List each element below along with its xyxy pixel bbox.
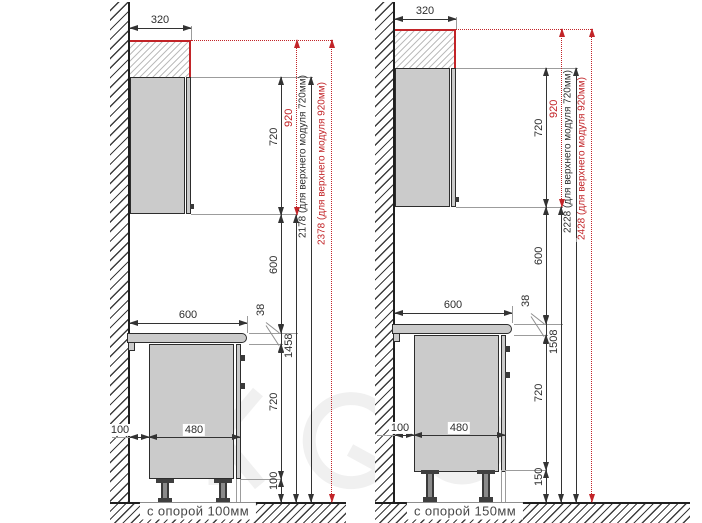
upper-module-920-extension (395, 29, 456, 68)
base-door-hinge-bottom (505, 372, 510, 378)
dim-seg-upper-height (546, 68, 547, 207)
dim-label-top-depth: 320 (414, 5, 436, 17)
dim-label-base-depth: 480 (448, 422, 470, 434)
leg-shaft (482, 474, 490, 497)
dim-seg-support (546, 470, 547, 502)
projection-line-920-top (456, 29, 593, 30)
dim-line-wall-offset (395, 435, 414, 436)
plinth-line (501, 470, 502, 502)
plinth-line (505, 470, 506, 502)
upper-door-knob (455, 197, 459, 202)
base-cabinet-door (501, 335, 506, 472)
leg-foot (423, 497, 437, 502)
leg-foot (479, 497, 493, 502)
dim-seg-gap (546, 207, 547, 324)
kitchen-mounting-diagram: 320 600 100 480 72 (0, 0, 702, 523)
upper-cabinet-body (395, 68, 450, 207)
dim-tail-wall-offset (377, 435, 395, 436)
dim-line-top-depth (395, 19, 456, 20)
dim-line-counter-width (395, 313, 512, 314)
leg-shaft (426, 474, 434, 497)
projection-line-counter-top (514, 324, 563, 325)
dim-seg-total-920 (591, 29, 592, 502)
dim-line-base-depth (414, 435, 505, 436)
diagram-support-150: 320 600 100 480 72 (0, 0, 702, 523)
dim-label-counter-width: 600 (442, 299, 464, 311)
projection-line-upper-top (456, 68, 578, 69)
extension-line (512, 306, 513, 323)
caption-support-150: с опорой 150мм (407, 503, 523, 520)
countertop (392, 324, 512, 334)
base-door-hinge-top (505, 346, 510, 352)
base-cabinet-body (414, 335, 499, 472)
dim-seg-base-height (546, 335, 547, 470)
upper-cabinet-door (451, 68, 456, 207)
dim-seg-floor-to-upper (561, 207, 562, 502)
dim-label-wall-offset: 100 (389, 422, 411, 434)
